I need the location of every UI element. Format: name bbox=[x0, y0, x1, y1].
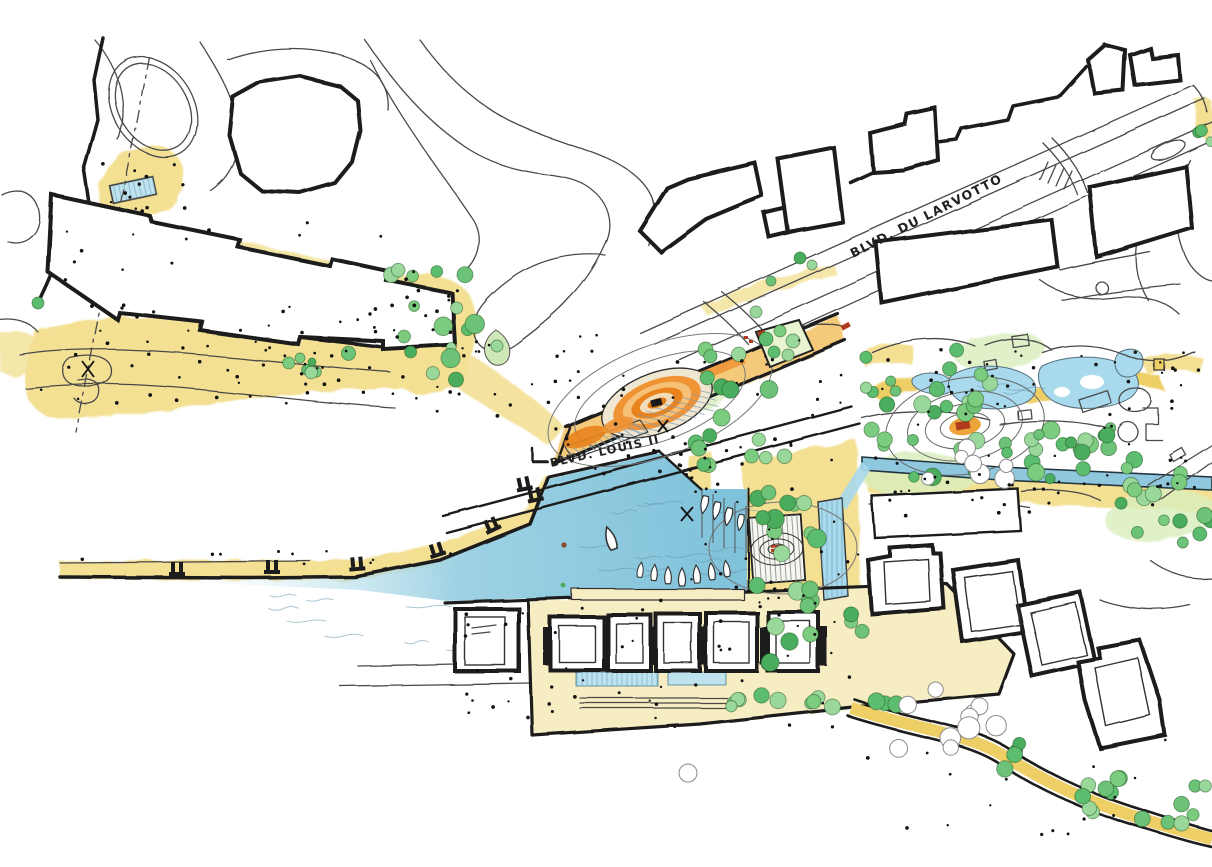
person-dot bbox=[132, 233, 134, 235]
person-dot bbox=[768, 528, 770, 530]
person-dot bbox=[846, 560, 849, 563]
site-plan-drawing: BLVD. DU LARVOTTO BLVD. LOUIS II bbox=[0, 0, 1212, 867]
water-areas-part bbox=[1080, 375, 1104, 389]
road-lines-part bbox=[358, 664, 456, 666]
person-dot bbox=[206, 345, 209, 348]
tree bbox=[844, 607, 859, 622]
tree bbox=[1045, 474, 1055, 484]
tree bbox=[1206, 137, 1212, 147]
tree bbox=[1099, 427, 1115, 443]
person-dot bbox=[797, 625, 799, 627]
person-dot bbox=[939, 348, 943, 352]
person-dot bbox=[758, 601, 760, 603]
person-dot bbox=[947, 824, 949, 826]
tree bbox=[491, 340, 503, 352]
tree bbox=[1174, 816, 1189, 831]
person-dot bbox=[740, 462, 743, 465]
plan-features-part bbox=[749, 340, 753, 343]
tree bbox=[752, 433, 765, 446]
tree bbox=[451, 302, 463, 314]
tree bbox=[909, 472, 920, 483]
person-dot bbox=[379, 235, 382, 238]
person-dot bbox=[304, 383, 307, 386]
pier-pavilions-part bbox=[700, 627, 706, 665]
person-dot bbox=[323, 382, 327, 386]
person-dot bbox=[953, 491, 955, 493]
person-dot bbox=[736, 501, 738, 503]
road-lines-part bbox=[1062, 284, 1180, 300]
tree bbox=[1193, 527, 1207, 541]
person-dot bbox=[1164, 739, 1167, 742]
person-dot bbox=[949, 773, 952, 776]
person-dot bbox=[881, 388, 883, 390]
person-dot bbox=[138, 183, 141, 186]
person-dot bbox=[654, 450, 658, 454]
person-dot bbox=[467, 711, 470, 714]
person-dot bbox=[238, 382, 240, 384]
person-dot bbox=[374, 307, 378, 311]
person-dot bbox=[429, 344, 432, 347]
person-dot bbox=[120, 306, 123, 309]
person-dot bbox=[1197, 368, 1200, 371]
harbour-office-building bbox=[455, 609, 519, 671]
person-dot bbox=[756, 393, 759, 396]
person-dot bbox=[965, 391, 968, 394]
person-dot bbox=[547, 702, 551, 706]
tree bbox=[1034, 429, 1045, 440]
person-dot bbox=[135, 315, 139, 319]
person-dot bbox=[689, 469, 692, 472]
person-dot bbox=[374, 330, 378, 334]
person-dot bbox=[1170, 399, 1174, 403]
tree bbox=[807, 694, 821, 708]
person-dot bbox=[886, 358, 890, 362]
tree bbox=[786, 334, 800, 348]
person-dot bbox=[1161, 372, 1163, 374]
tree bbox=[1161, 815, 1175, 829]
tree bbox=[770, 692, 786, 708]
tree bbox=[1159, 515, 1170, 526]
person-dot bbox=[620, 394, 623, 397]
person-dot bbox=[595, 334, 598, 337]
tree bbox=[754, 688, 769, 703]
person-dot bbox=[488, 344, 491, 347]
person-dot bbox=[547, 401, 551, 405]
person-dot bbox=[759, 605, 762, 608]
person-dot bbox=[551, 710, 554, 713]
person-dot bbox=[300, 331, 304, 335]
tree bbox=[308, 358, 316, 366]
person-dot bbox=[747, 589, 750, 592]
person-dot bbox=[719, 572, 722, 575]
person-dot bbox=[641, 608, 644, 611]
tree-outline bbox=[679, 764, 697, 782]
person-dot bbox=[833, 521, 835, 523]
person-dot bbox=[602, 472, 606, 476]
tree bbox=[890, 386, 901, 397]
person-dot bbox=[313, 352, 316, 355]
person-dot bbox=[262, 363, 265, 366]
person-dot bbox=[466, 623, 469, 626]
tree bbox=[1171, 474, 1187, 490]
person-dot bbox=[368, 366, 371, 369]
person-dot bbox=[325, 550, 328, 553]
tree bbox=[777, 449, 792, 464]
person-dot bbox=[866, 756, 870, 760]
person-dot bbox=[769, 581, 772, 584]
person-dot bbox=[739, 446, 742, 449]
person-dot bbox=[671, 435, 675, 439]
person-dot bbox=[369, 562, 372, 565]
person-dot bbox=[964, 412, 967, 415]
person-dot bbox=[709, 466, 712, 469]
person-dot bbox=[303, 563, 306, 566]
person-dot bbox=[857, 553, 859, 555]
person-dot bbox=[90, 304, 94, 308]
road-lines-part bbox=[1150, 560, 1212, 578]
person-dot bbox=[927, 411, 929, 413]
tree bbox=[305, 366, 318, 379]
tree bbox=[879, 397, 894, 412]
person-dot bbox=[830, 652, 832, 654]
tree bbox=[1042, 421, 1060, 439]
tree bbox=[1145, 486, 1161, 502]
person-dot bbox=[947, 385, 950, 388]
person-dot bbox=[991, 375, 994, 378]
tree bbox=[449, 372, 464, 387]
pier-water-strips-part bbox=[576, 672, 658, 686]
person-dot bbox=[950, 391, 953, 394]
person-dot bbox=[448, 390, 452, 394]
water-wave bbox=[287, 620, 327, 622]
person-dot bbox=[933, 476, 936, 479]
person-dot bbox=[412, 304, 416, 308]
road-lines-part bbox=[1100, 600, 1190, 609]
water-wave bbox=[270, 594, 297, 597]
person-dot bbox=[401, 375, 405, 379]
person-dot bbox=[316, 367, 318, 369]
road-lines-part bbox=[1095, 281, 1107, 293]
person-dot bbox=[390, 304, 394, 308]
person-dot bbox=[798, 339, 800, 341]
tree bbox=[974, 368, 988, 382]
tree bbox=[968, 391, 984, 407]
person-dot bbox=[1054, 455, 1057, 458]
person-dot bbox=[582, 679, 584, 681]
tree bbox=[1002, 447, 1013, 458]
tree bbox=[1195, 125, 1207, 137]
person-dot bbox=[183, 206, 187, 210]
person-dot bbox=[1051, 829, 1054, 832]
tree bbox=[1075, 788, 1091, 804]
plan-features-part bbox=[744, 336, 748, 339]
tree bbox=[824, 699, 840, 715]
person-dot bbox=[291, 553, 294, 556]
person-dot bbox=[703, 457, 706, 460]
tree bbox=[868, 693, 885, 710]
person-dot bbox=[728, 648, 731, 651]
person-dot bbox=[465, 693, 468, 696]
person-dot bbox=[997, 511, 1001, 515]
person-dot bbox=[986, 363, 989, 366]
person-dot bbox=[80, 249, 84, 253]
person-dot bbox=[622, 387, 626, 391]
person-dot bbox=[1008, 483, 1011, 486]
person-dot bbox=[685, 473, 688, 476]
water-wave bbox=[404, 640, 428, 643]
tree bbox=[864, 422, 879, 437]
person-dot bbox=[1057, 491, 1060, 494]
tree bbox=[808, 529, 827, 548]
tree bbox=[860, 351, 872, 363]
tree bbox=[782, 349, 794, 361]
person-dot bbox=[432, 328, 435, 331]
person-dot bbox=[579, 335, 582, 338]
person-dot bbox=[822, 702, 825, 705]
person-dot bbox=[268, 324, 270, 326]
person-dot bbox=[1106, 474, 1108, 476]
person-dot bbox=[573, 695, 577, 699]
person-dot bbox=[447, 295, 450, 298]
person-dot bbox=[449, 552, 452, 555]
person-dot bbox=[283, 354, 286, 357]
person-dot bbox=[219, 553, 222, 556]
person-dot bbox=[555, 355, 558, 358]
person-dot bbox=[392, 392, 395, 395]
tree bbox=[860, 382, 871, 393]
person-dot bbox=[917, 423, 919, 425]
person-dot bbox=[784, 588, 786, 590]
person-dot bbox=[362, 391, 365, 394]
person-dot bbox=[449, 330, 453, 334]
person-dot bbox=[618, 691, 621, 694]
tree bbox=[457, 267, 473, 283]
tree bbox=[32, 297, 44, 309]
person-dot bbox=[215, 396, 219, 400]
person-dot bbox=[614, 422, 618, 426]
building-top-right-a bbox=[1088, 45, 1125, 93]
person-dot bbox=[565, 667, 567, 669]
person-dot bbox=[590, 350, 593, 353]
tree bbox=[391, 263, 405, 277]
person-dot bbox=[456, 289, 459, 292]
tree bbox=[800, 598, 815, 613]
tree bbox=[691, 440, 707, 456]
person-dot bbox=[226, 369, 229, 372]
tree bbox=[1131, 526, 1143, 538]
person-dot bbox=[74, 353, 78, 357]
person-dot bbox=[751, 613, 754, 616]
tree bbox=[780, 495, 796, 511]
tree bbox=[1199, 780, 1211, 792]
person-dot bbox=[145, 175, 149, 179]
person-dot bbox=[339, 321, 342, 324]
person-dot bbox=[491, 705, 495, 709]
person-dot bbox=[996, 403, 999, 406]
tree bbox=[405, 346, 417, 358]
person-dot bbox=[462, 354, 466, 358]
person-dot bbox=[281, 310, 285, 314]
person-dot bbox=[40, 388, 43, 391]
person-dot bbox=[673, 725, 676, 728]
person-dot bbox=[790, 487, 794, 491]
person-dot bbox=[740, 359, 744, 363]
person-dot bbox=[146, 340, 149, 343]
person-dot bbox=[110, 201, 112, 203]
person-dot bbox=[1028, 510, 1032, 514]
tree bbox=[907, 434, 918, 445]
person-dot bbox=[412, 270, 415, 273]
person-dot bbox=[655, 400, 658, 403]
water-wave bbox=[406, 605, 452, 607]
person-dot bbox=[719, 619, 723, 623]
person-dot bbox=[175, 398, 179, 402]
tree-outline bbox=[928, 682, 943, 697]
person-dot bbox=[929, 378, 933, 382]
road-lines-part bbox=[1118, 422, 1138, 442]
tree bbox=[794, 252, 806, 264]
person-dot bbox=[198, 360, 202, 364]
person-dot bbox=[148, 393, 152, 397]
person-dot bbox=[509, 403, 512, 406]
person-dot bbox=[720, 649, 723, 652]
person-dot bbox=[802, 594, 805, 597]
person-dot bbox=[621, 433, 624, 436]
person-dot bbox=[496, 414, 500, 418]
person-dot bbox=[436, 410, 439, 413]
person-dot bbox=[306, 221, 309, 224]
person-dot bbox=[249, 395, 252, 398]
tree-outline bbox=[965, 455, 982, 472]
person-dot bbox=[1193, 486, 1196, 489]
person-dot bbox=[373, 326, 376, 329]
tree bbox=[1076, 462, 1090, 476]
person-dot bbox=[1176, 482, 1178, 484]
tree bbox=[997, 761, 1013, 777]
person-dot bbox=[987, 455, 989, 457]
person-dot bbox=[415, 397, 418, 400]
person-dot bbox=[255, 341, 257, 343]
person-dot bbox=[330, 354, 334, 358]
road-lines-part bbox=[420, 40, 656, 245]
person-dot bbox=[1094, 363, 1098, 367]
road-lines-part bbox=[1143, 408, 1162, 440]
person-dot bbox=[1092, 765, 1095, 768]
person-dot bbox=[517, 620, 520, 623]
pier-pavilions-part bbox=[543, 627, 550, 665]
person-dot bbox=[1032, 366, 1035, 369]
person-dot bbox=[1169, 459, 1172, 462]
person-dot bbox=[268, 346, 271, 349]
person-dot bbox=[475, 340, 478, 343]
person-dot bbox=[679, 452, 683, 456]
pedestrian-path-washes-part bbox=[700, 265, 838, 316]
person-dot bbox=[507, 700, 509, 702]
person-dot bbox=[655, 703, 658, 706]
person-dot bbox=[694, 683, 697, 686]
person-dot bbox=[777, 613, 780, 616]
person-dot bbox=[1042, 487, 1045, 490]
person-dot bbox=[461, 347, 463, 349]
tree bbox=[697, 458, 711, 472]
person-dot bbox=[660, 686, 662, 688]
person-dot bbox=[694, 490, 697, 493]
tree bbox=[761, 485, 776, 500]
person-dot bbox=[1151, 503, 1154, 506]
tree bbox=[774, 545, 790, 561]
person-dot bbox=[121, 268, 124, 271]
person-dot bbox=[554, 427, 557, 430]
person-dot bbox=[1067, 832, 1070, 835]
person-dot bbox=[819, 380, 822, 383]
person-dot bbox=[396, 335, 399, 338]
person-dot bbox=[145, 206, 149, 210]
tree bbox=[745, 449, 759, 463]
plan-features-part bbox=[561, 583, 566, 588]
person-dot bbox=[477, 350, 480, 353]
person-dot bbox=[787, 655, 789, 657]
building-larvotto-slab-b bbox=[1090, 166, 1192, 257]
pier-pavilions-part bbox=[650, 627, 656, 665]
person-dot bbox=[405, 295, 409, 299]
tree bbox=[759, 332, 773, 346]
person-dot bbox=[635, 617, 638, 620]
person-dot bbox=[684, 442, 687, 445]
person-dot bbox=[837, 573, 839, 575]
person-dot bbox=[424, 314, 427, 317]
water-wave bbox=[269, 607, 299, 611]
quay-edges-part bbox=[533, 449, 548, 462]
building-top-right-b bbox=[1130, 48, 1180, 85]
person-dot bbox=[820, 550, 823, 553]
person-dot bbox=[321, 366, 324, 369]
person-dot bbox=[561, 473, 563, 475]
road-lines-part bbox=[1043, 143, 1078, 195]
tree bbox=[1174, 796, 1190, 812]
tree bbox=[807, 260, 817, 270]
person-dot bbox=[504, 623, 508, 627]
road-lines-part bbox=[365, 40, 610, 245]
person-dot bbox=[833, 621, 835, 623]
tree bbox=[756, 511, 770, 525]
road-lines-part bbox=[1169, 447, 1185, 461]
road-lines-part bbox=[340, 683, 530, 686]
tree bbox=[1134, 811, 1150, 827]
person-dot bbox=[715, 491, 717, 493]
person-dot bbox=[679, 464, 682, 467]
water-wave bbox=[325, 634, 364, 637]
person-dot bbox=[1080, 355, 1082, 357]
person-dot bbox=[207, 228, 211, 232]
person-dot bbox=[471, 699, 474, 702]
person-dot bbox=[509, 677, 513, 681]
person-dot bbox=[839, 402, 841, 404]
tree bbox=[295, 353, 305, 363]
road-lines-part bbox=[1040, 162, 1072, 189]
person-dot bbox=[771, 358, 774, 361]
person-dot bbox=[147, 353, 150, 356]
tree-outline bbox=[958, 717, 980, 739]
person-dot bbox=[345, 350, 348, 353]
person-dot bbox=[106, 341, 110, 345]
tree bbox=[1121, 462, 1133, 474]
person-dot bbox=[368, 312, 371, 315]
tree bbox=[700, 371, 714, 385]
person-dot bbox=[656, 670, 659, 673]
pier-water-strips-part bbox=[668, 672, 726, 685]
person-dot bbox=[690, 578, 692, 580]
person-dot bbox=[178, 376, 181, 379]
